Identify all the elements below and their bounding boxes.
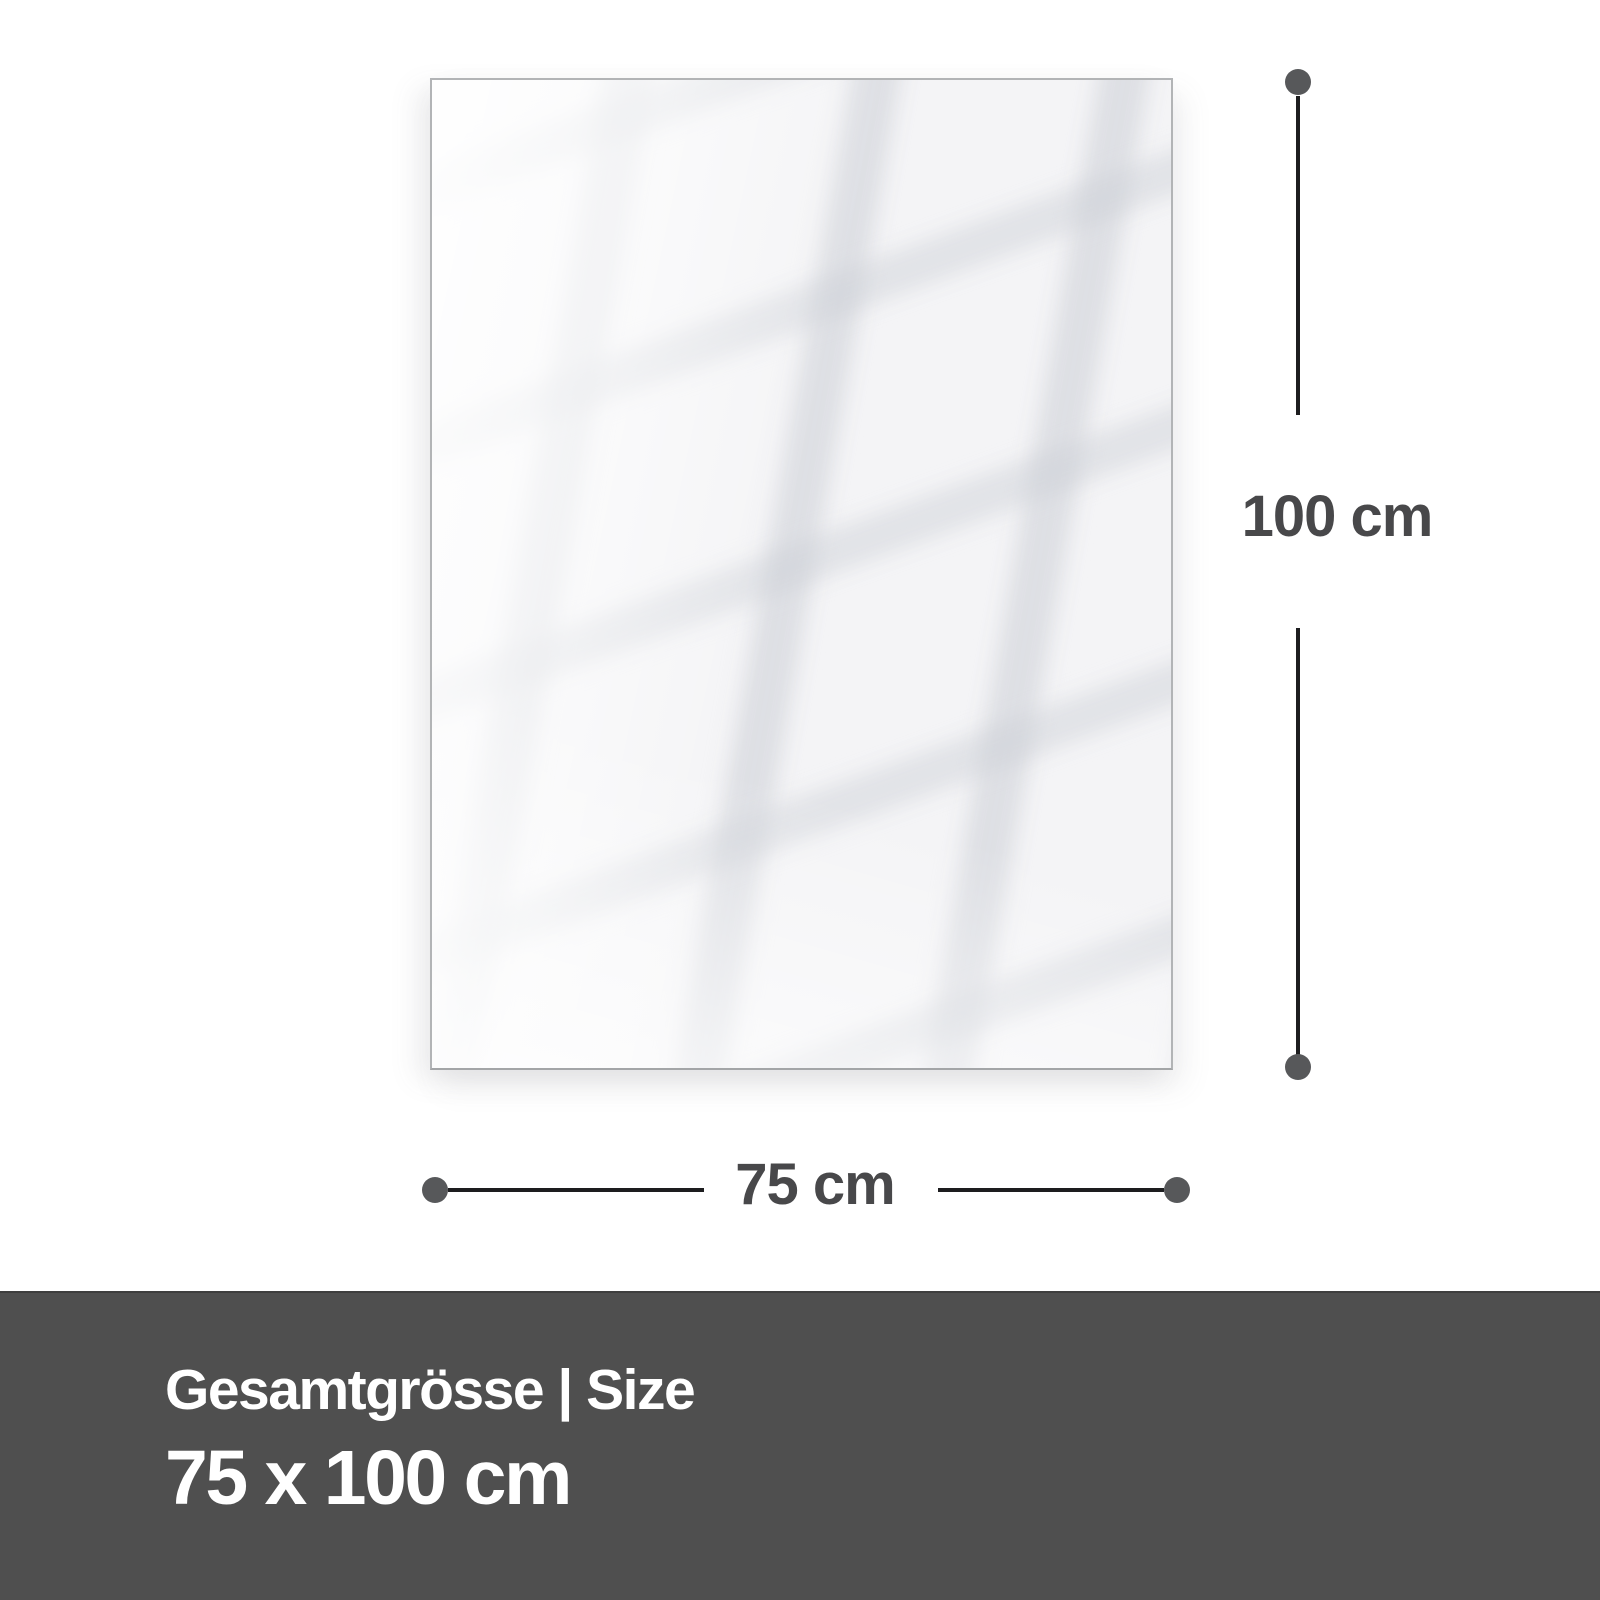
width-dimension-label: 75 cm	[665, 1156, 965, 1214]
height-dimension-line-upper	[1296, 96, 1300, 415]
dimension-endpoint-dot-top	[1285, 69, 1311, 95]
dimension-endpoint-dot-bottom	[1285, 1054, 1311, 1080]
product-size-diagram: 100 cm 75 cm Gesamtgrösse | Size 75 x 10…	[0, 0, 1600, 1600]
panel-glass-sheen	[432, 80, 1171, 1068]
height-dimension-label: 100 cm	[1187, 488, 1487, 546]
glass-panel-preview	[430, 78, 1173, 1070]
size-banner-title: Gesamtgrösse | Size	[165, 1362, 694, 1419]
height-dimension-line-lower	[1296, 628, 1300, 1055]
width-dimension-line-right	[938, 1188, 1164, 1192]
dimension-endpoint-dot-left	[422, 1177, 448, 1203]
size-banner-value: 75 x 100 cm	[165, 1440, 570, 1517]
dimension-endpoint-dot-right	[1164, 1177, 1190, 1203]
